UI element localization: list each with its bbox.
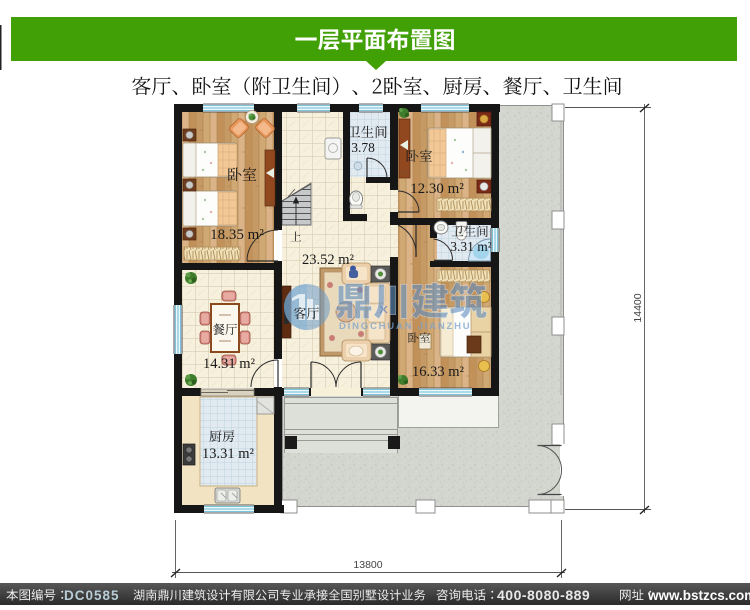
svg-text:3.78: 3.78: [351, 140, 375, 155]
svg-text:16.33 m²: 16.33 m²: [412, 364, 465, 380]
svg-text:13800: 13800: [353, 559, 382, 571]
svg-text:400-8080-889: 400-8080-889: [497, 587, 590, 603]
svg-text:23.52 m²: 23.52 m²: [302, 252, 355, 268]
svg-text:DINGCHUAN JIANZHU: DINGCHUAN JIANZHU: [339, 321, 471, 332]
svg-text:13.31 m²: 13.31 m²: [202, 446, 255, 462]
svg-text:14400: 14400: [632, 293, 644, 322]
svg-text:14.31 m²: 14.31 m²: [203, 356, 256, 372]
svg-text:3.31 m²: 3.31 m²: [450, 239, 492, 254]
svg-text:www.bstzcs.com: www.bstzcs.com: [647, 588, 750, 603]
svg-text:12.30 m²: 12.30 m²: [410, 181, 464, 197]
svg-text:DC0585: DC0585: [64, 588, 120, 603]
svg-text:18.35 m²: 18.35 m²: [210, 227, 264, 243]
